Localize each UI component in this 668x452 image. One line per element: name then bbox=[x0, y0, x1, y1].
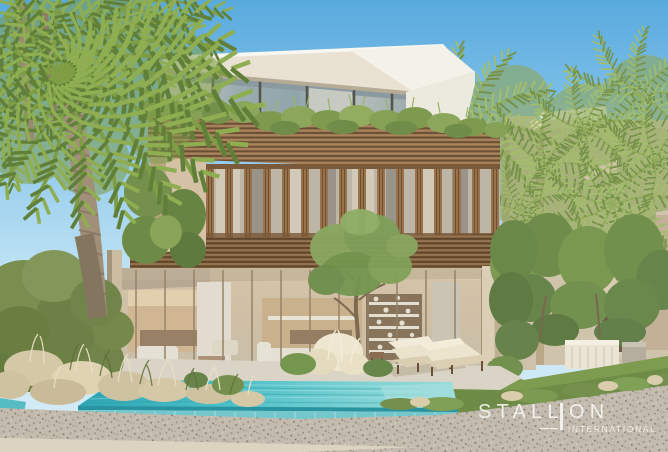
svg-text:STALL: STALL bbox=[478, 401, 564, 423]
svg-text:ON: ON bbox=[569, 401, 609, 423]
svg-text:INTERNATIONAL: INTERNATIONAL bbox=[568, 424, 657, 434]
